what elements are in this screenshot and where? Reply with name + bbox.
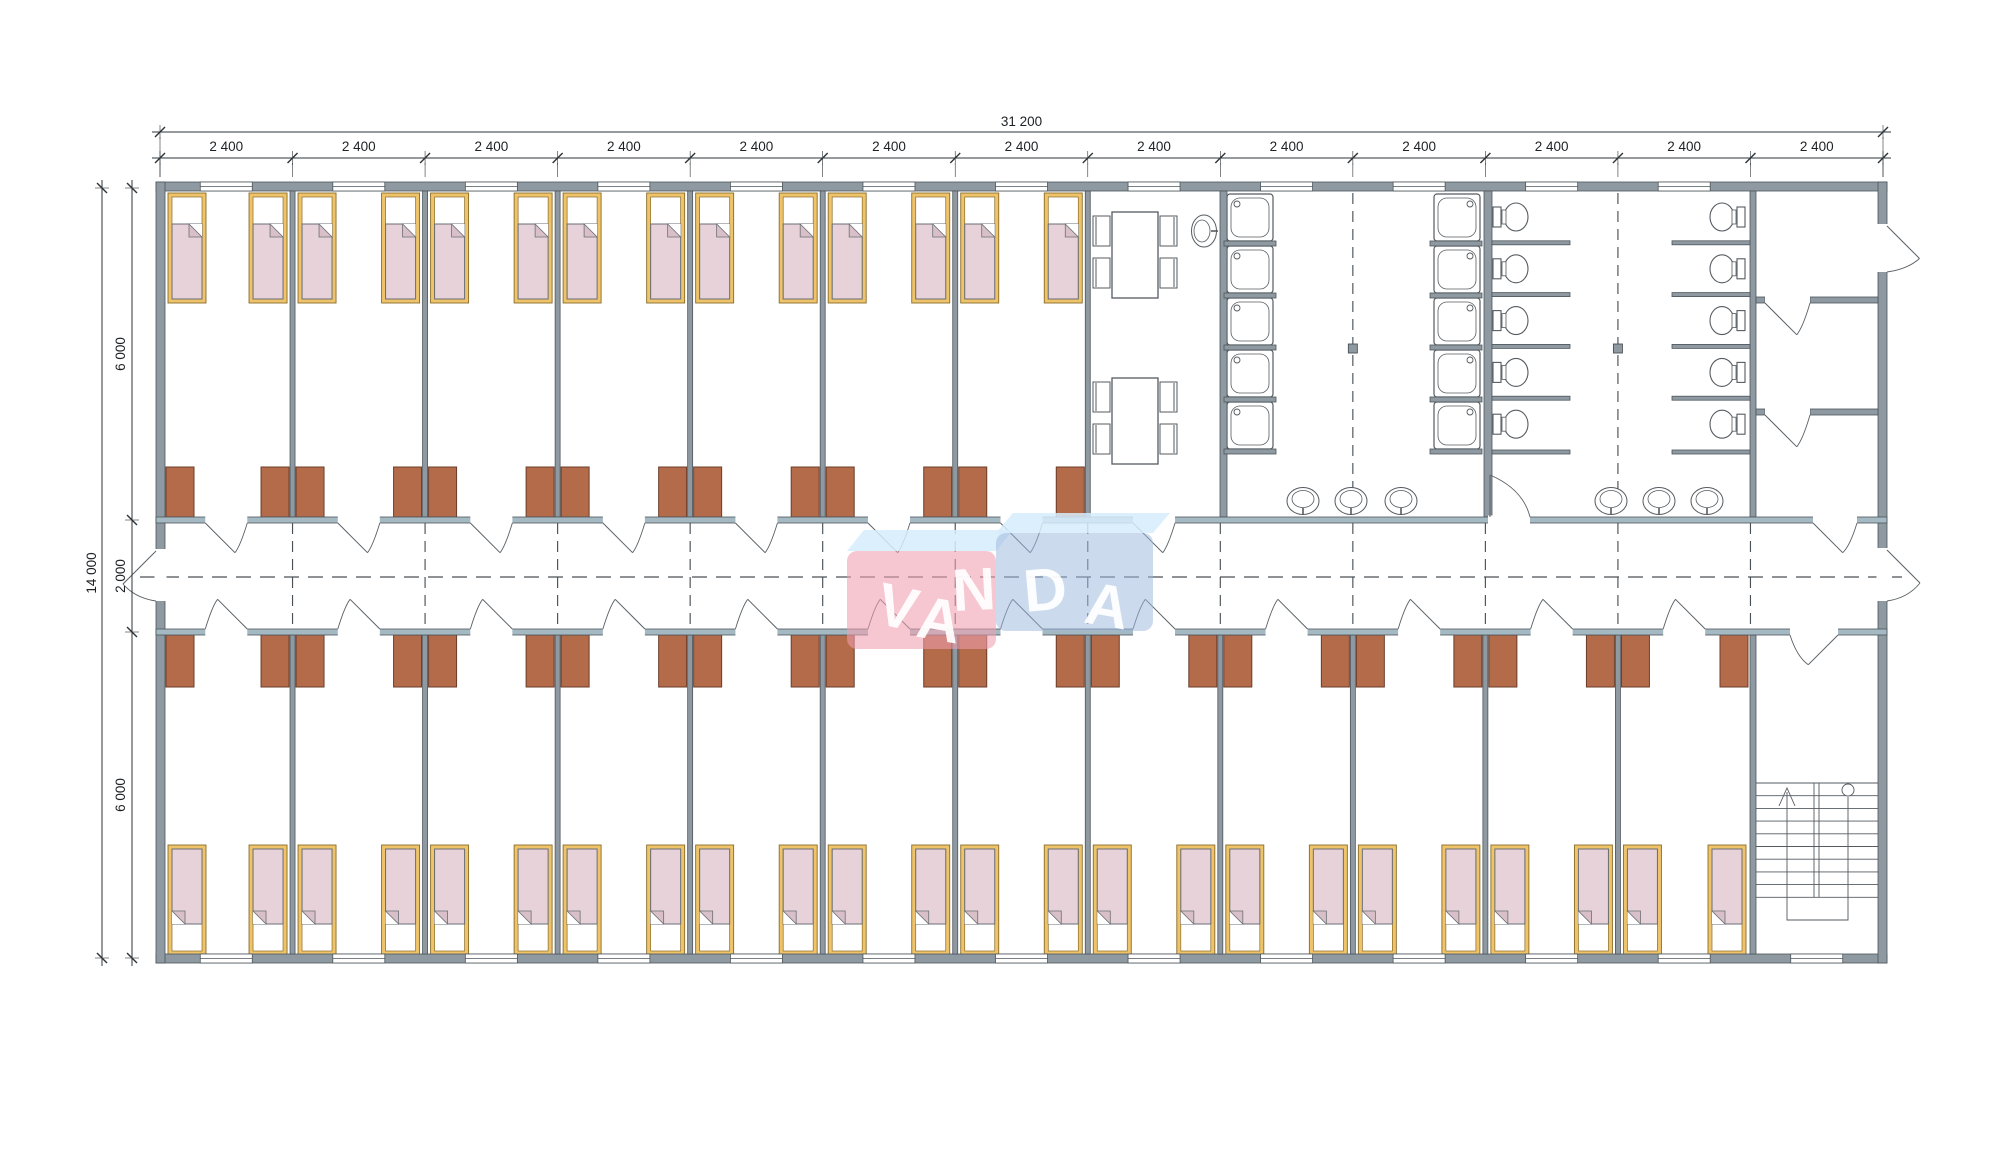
door-swing-arc (235, 523, 247, 553)
window (598, 182, 650, 191)
wash-basin (1595, 488, 1627, 516)
wardrobe (1056, 635, 1084, 687)
door-leaf (350, 599, 380, 629)
bed (1574, 845, 1612, 955)
shower-tray (1227, 298, 1273, 345)
toilet-bowl (1504, 358, 1528, 386)
window (863, 954, 915, 963)
door (205, 599, 247, 629)
module-axis-marker (1613, 344, 1622, 353)
wardrobe (526, 467, 554, 517)
wardrobe (791, 467, 819, 517)
door (1490, 475, 1530, 517)
door-leaf (338, 523, 368, 553)
door-opening (1663, 628, 1705, 637)
shower-tray (1434, 194, 1480, 241)
partition-wall (1750, 191, 1756, 517)
toilet-stall-divider (1492, 293, 1570, 297)
door-opening (470, 516, 512, 525)
wash-basin (1643, 488, 1675, 516)
door-opening (603, 628, 645, 637)
bed (514, 193, 552, 303)
staircase (1756, 783, 1878, 920)
partition-wall (1350, 635, 1355, 954)
toilet-stall-divider (1492, 450, 1570, 454)
toilet-bowl (1710, 307, 1734, 335)
wardrobe (924, 467, 952, 517)
wardrobe (429, 467, 457, 517)
bed (298, 845, 336, 955)
toilet-tank (1737, 259, 1745, 279)
window (333, 182, 385, 191)
window (1261, 182, 1313, 191)
wardrobe (1321, 635, 1349, 687)
logo-letter: D (1021, 554, 1070, 625)
shower-tray (1434, 402, 1480, 449)
dimension-label: 14 000 (84, 552, 99, 593)
wardrobe (261, 467, 289, 517)
door-swing-arc (765, 523, 777, 553)
toilet (1710, 203, 1745, 231)
wardrobe (826, 467, 854, 517)
toilet-stall-divider (1492, 241, 1570, 245)
partition-wall (953, 191, 958, 517)
door (1813, 523, 1857, 553)
door-leaf (470, 523, 500, 553)
dimension-label: 2 400 (1005, 139, 1039, 154)
partition-wall (423, 191, 428, 517)
door-leaf (1808, 635, 1838, 665)
toilet-seat-hinge (1732, 262, 1736, 276)
door-opening (1877, 224, 1889, 272)
door (1531, 599, 1573, 629)
door-swing-arc (1398, 599, 1410, 629)
toilet-bowl (1710, 255, 1734, 283)
door (1663, 599, 1705, 629)
partition-wall (1218, 635, 1223, 954)
bed (382, 845, 420, 955)
door-swing-arc (1163, 523, 1175, 553)
shower-divider (1224, 397, 1276, 402)
bed (1708, 845, 1746, 955)
wardrobe (1091, 635, 1119, 687)
door-opening (1790, 628, 1838, 637)
bed (431, 845, 469, 955)
toilet (1710, 307, 1745, 335)
dimension-label: 2 400 (872, 139, 906, 154)
bed (514, 845, 552, 955)
shower-divider (1224, 241, 1276, 246)
door-swing-arc (205, 599, 217, 629)
door-swing-arc (633, 523, 645, 553)
shower-tray-rim (1434, 194, 1480, 241)
door-swing-arc (1790, 635, 1808, 665)
door (338, 599, 380, 629)
partition-wall (1483, 635, 1488, 954)
shower-tray (1227, 194, 1273, 241)
door-opening (603, 516, 645, 525)
bed (1093, 845, 1131, 955)
dimension-label: 2 400 (1402, 139, 1436, 154)
door (338, 523, 380, 553)
bed (1442, 845, 1480, 955)
window (465, 182, 517, 191)
door-opening (1531, 628, 1573, 637)
wardrobe (261, 635, 289, 687)
wardrobe (394, 635, 422, 687)
toilet (1710, 358, 1745, 386)
bed (563, 845, 601, 955)
dimension-label: 6 000 (113, 337, 128, 371)
bed (249, 193, 287, 303)
bed (168, 193, 206, 303)
wardrobe (1621, 635, 1649, 687)
toilet-tank (1737, 207, 1745, 227)
toilet-stall-divider (1672, 450, 1750, 454)
partition-wall (555, 635, 560, 954)
toilet-stall-divider (1672, 293, 1750, 297)
toilet (1710, 255, 1745, 283)
window (1128, 954, 1180, 963)
bed (563, 193, 601, 303)
window (333, 954, 385, 963)
partition-wall (820, 635, 825, 954)
door-leaf (748, 599, 778, 629)
toilet-seat-hinge (1732, 314, 1736, 328)
bed (1044, 845, 1082, 955)
toilet-bowl (1504, 410, 1528, 438)
partition-wall (1085, 191, 1090, 517)
door-opening (1813, 516, 1857, 525)
toilet-tank (1493, 259, 1501, 279)
toilet-stall-divider (1672, 396, 1750, 400)
window (863, 182, 915, 191)
partition-wall (423, 635, 428, 954)
window (996, 954, 1048, 963)
wardrobe (694, 467, 722, 517)
floor-plan-drawing: 31 2002 4002 4002 4002 4002 4002 4002 40… (0, 0, 2000, 1164)
wardrobe (659, 467, 687, 517)
door-leaf (1765, 415, 1797, 447)
door-opening (338, 516, 380, 525)
toilet-seat-hinge (1502, 210, 1506, 224)
wardrobe (296, 635, 324, 687)
stair-walk-line (1787, 792, 1848, 920)
window (996, 182, 1048, 191)
window (598, 954, 650, 963)
shower-tray-rim (1227, 194, 1273, 241)
wash-basin (1691, 488, 1723, 516)
toilet-seat-hinge (1502, 365, 1506, 379)
wardrobe (1720, 635, 1748, 687)
dimension-label: 2 000 (113, 559, 128, 593)
door-opening (1398, 628, 1440, 637)
wardrobe (561, 635, 589, 687)
partition-wall (1756, 409, 1765, 415)
wardrobe (561, 467, 589, 517)
door-leaf (603, 523, 633, 553)
dimension-label: 2 400 (1800, 139, 1834, 154)
wardrobe (959, 467, 987, 517)
door (1266, 599, 1308, 629)
shower-divider (1224, 345, 1276, 350)
door-leaf (1813, 523, 1843, 553)
window (1526, 954, 1578, 963)
toilet-stall-divider (1672, 344, 1750, 348)
door-opening (1488, 516, 1530, 525)
logo-cube-lid (996, 513, 1170, 533)
bed (1044, 193, 1082, 303)
window (730, 182, 782, 191)
toilet-bowl (1504, 307, 1528, 335)
door-swing-arc (735, 599, 747, 629)
door-leaf (483, 599, 513, 629)
wash-basin (1385, 488, 1417, 516)
toilet-bowl (1504, 255, 1528, 283)
module-axis-marker (1348, 344, 1357, 353)
door (470, 599, 512, 629)
partition-wall (1810, 409, 1878, 415)
toilet-seat-hinge (1732, 417, 1736, 431)
dining-table-group (1093, 212, 1177, 298)
door-swing-arc (338, 599, 350, 629)
toilet-tank (1493, 362, 1501, 382)
door-opening (735, 628, 777, 637)
wardrobe (394, 467, 422, 517)
door-opening (868, 516, 910, 525)
bed (1491, 845, 1529, 955)
dimension-label: 2 400 (607, 139, 641, 154)
door (603, 599, 645, 629)
door (205, 523, 247, 553)
door-leaf (1887, 226, 1920, 259)
shower-divider (1430, 449, 1482, 454)
wardrobe (1224, 635, 1252, 687)
door-opening (205, 516, 247, 525)
door-swing-arc (368, 523, 380, 553)
toilet (1493, 410, 1528, 438)
door (1790, 635, 1838, 665)
toilet-bowl (1504, 203, 1528, 231)
bed (961, 193, 999, 303)
shower-tray-rim (1227, 402, 1273, 449)
bed (168, 845, 206, 955)
door-opening (470, 628, 512, 637)
wardrobe (166, 635, 194, 687)
dining-table (1112, 378, 1158, 464)
door-leaf (1410, 599, 1440, 629)
partition-wall (1756, 297, 1765, 303)
partition-wall (820, 191, 825, 517)
door (470, 523, 512, 553)
bed (647, 845, 685, 955)
toilet-bowl (1710, 358, 1734, 386)
shower-tray (1227, 350, 1273, 397)
door-swing-arc (470, 599, 482, 629)
toilet (1493, 307, 1528, 335)
door-leaf (218, 599, 248, 629)
partition-wall (1750, 635, 1756, 954)
stair-start-marker (1842, 784, 1854, 796)
door-opening (1266, 628, 1308, 637)
partition-wall (1085, 635, 1090, 954)
wardrobe (1356, 635, 1384, 687)
door-opening (338, 628, 380, 637)
bed (298, 193, 336, 303)
dimension-label: 2 400 (1137, 139, 1171, 154)
window (1791, 954, 1843, 963)
dimension-label: 6 000 (113, 778, 128, 812)
bed (912, 845, 950, 955)
toilet (1493, 255, 1528, 283)
wash-basin (1287, 488, 1319, 516)
wardrobe (659, 635, 687, 687)
partition-wall (1220, 191, 1227, 517)
dimension-label: 2 400 (740, 139, 774, 154)
window (1393, 954, 1445, 963)
toilet (1493, 203, 1528, 231)
window (1261, 954, 1313, 963)
toilet-bowl (1710, 410, 1734, 438)
toilet-tank (1493, 414, 1501, 434)
door (735, 599, 777, 629)
bed (1226, 845, 1264, 955)
door-swing-arc (603, 599, 615, 629)
toilet-tank (1737, 311, 1745, 331)
partition-wall (953, 635, 958, 954)
bed (696, 845, 734, 955)
partition-wall (688, 191, 693, 517)
shower-tray-rim (1434, 298, 1480, 345)
window (200, 182, 252, 191)
shower-tray-rim (1227, 350, 1273, 397)
shower-tray-rim (1434, 402, 1480, 449)
shower-tray-rim (1227, 246, 1273, 293)
toilet-tank (1493, 311, 1501, 331)
bed (779, 845, 817, 955)
door-swing-arc (1663, 599, 1675, 629)
partition-wall (290, 635, 295, 954)
toilet-tank (1737, 414, 1745, 434)
door-swing-arc (1266, 599, 1278, 629)
toilet-tank (1493, 207, 1501, 227)
window (1658, 954, 1710, 963)
wardrobe (166, 467, 194, 517)
window (1128, 182, 1180, 191)
wash-basin (1192, 215, 1219, 247)
wardrobe (1489, 635, 1517, 687)
door-leaf (1765, 303, 1797, 335)
dimension-label: 2 400 (342, 139, 376, 154)
window (1526, 182, 1578, 191)
bed (1309, 845, 1347, 955)
door-leaf (1278, 599, 1308, 629)
logo-cube-lid (847, 530, 1013, 551)
door (1887, 226, 1920, 272)
partition-wall (290, 191, 295, 517)
door-leaf (615, 599, 645, 629)
door (1398, 599, 1440, 629)
toilet-seat-hinge (1502, 262, 1506, 276)
door-swing-arc (1887, 259, 1920, 273)
partition-wall (1615, 635, 1620, 954)
shower-divider (1430, 345, 1482, 350)
bed (961, 845, 999, 955)
bed (1177, 845, 1215, 955)
toilet-stall-divider (1672, 241, 1750, 245)
logo-letter: N (951, 555, 998, 624)
shower-tray-rim (1227, 298, 1273, 345)
dimension-label: 2 400 (474, 139, 508, 154)
wardrobe (1454, 635, 1482, 687)
door-opening (155, 549, 167, 601)
door-opening (205, 628, 247, 637)
door-leaf (1675, 599, 1705, 629)
door (735, 523, 777, 553)
wardrobe (296, 467, 324, 517)
toilet (1710, 410, 1745, 438)
bed (779, 193, 817, 303)
partition-wall (555, 191, 560, 517)
door (1887, 550, 1920, 601)
dimension-label: 31 200 (1001, 114, 1042, 129)
window (200, 954, 252, 963)
door-leaf (1887, 550, 1920, 583)
dimension-label: 2 400 (1667, 139, 1701, 154)
shower-divider (1224, 449, 1276, 454)
toilet-stall-divider (1492, 344, 1570, 348)
partition-wall (688, 635, 693, 954)
window (1393, 182, 1445, 191)
shower-tray-rim (1434, 246, 1480, 293)
shower-tray (1434, 350, 1480, 397)
door-leaf (735, 523, 765, 553)
toilet-stall-divider (1492, 396, 1570, 400)
shower-tray (1227, 402, 1273, 449)
shower-divider (1224, 293, 1276, 298)
bed (696, 193, 734, 303)
door-opening (1877, 548, 1889, 601)
wardrobe (429, 635, 457, 687)
toilet-seat-hinge (1502, 417, 1506, 431)
floor-plan-page: 31 2002 4002 4002 4002 4002 4002 4002 40… (0, 0, 2000, 1164)
bed (1358, 845, 1396, 955)
dimension-label: 2 400 (1270, 139, 1304, 154)
door-swing-arc (1843, 523, 1857, 553)
partition-wall (1810, 297, 1878, 303)
door-opening (735, 516, 777, 525)
door-opening (1765, 408, 1810, 416)
shower-divider (1430, 241, 1482, 246)
toilet-seat-hinge (1502, 314, 1506, 328)
shower-divider (1430, 293, 1482, 298)
door (603, 523, 645, 553)
wash-basin (1335, 488, 1367, 516)
wardrobe (1189, 635, 1217, 687)
wardrobe (1056, 467, 1084, 517)
bed (382, 193, 420, 303)
wardrobe (1586, 635, 1614, 687)
bed (431, 193, 469, 303)
door-leaf (205, 523, 235, 553)
bed (828, 193, 866, 303)
wardrobe (791, 635, 819, 687)
shower-tray (1227, 246, 1273, 293)
shower-tray-rim (1434, 350, 1480, 397)
dimension-label: 2 400 (1535, 139, 1569, 154)
door-swing-arc (1797, 415, 1810, 447)
toilet-tank (1737, 362, 1745, 382)
